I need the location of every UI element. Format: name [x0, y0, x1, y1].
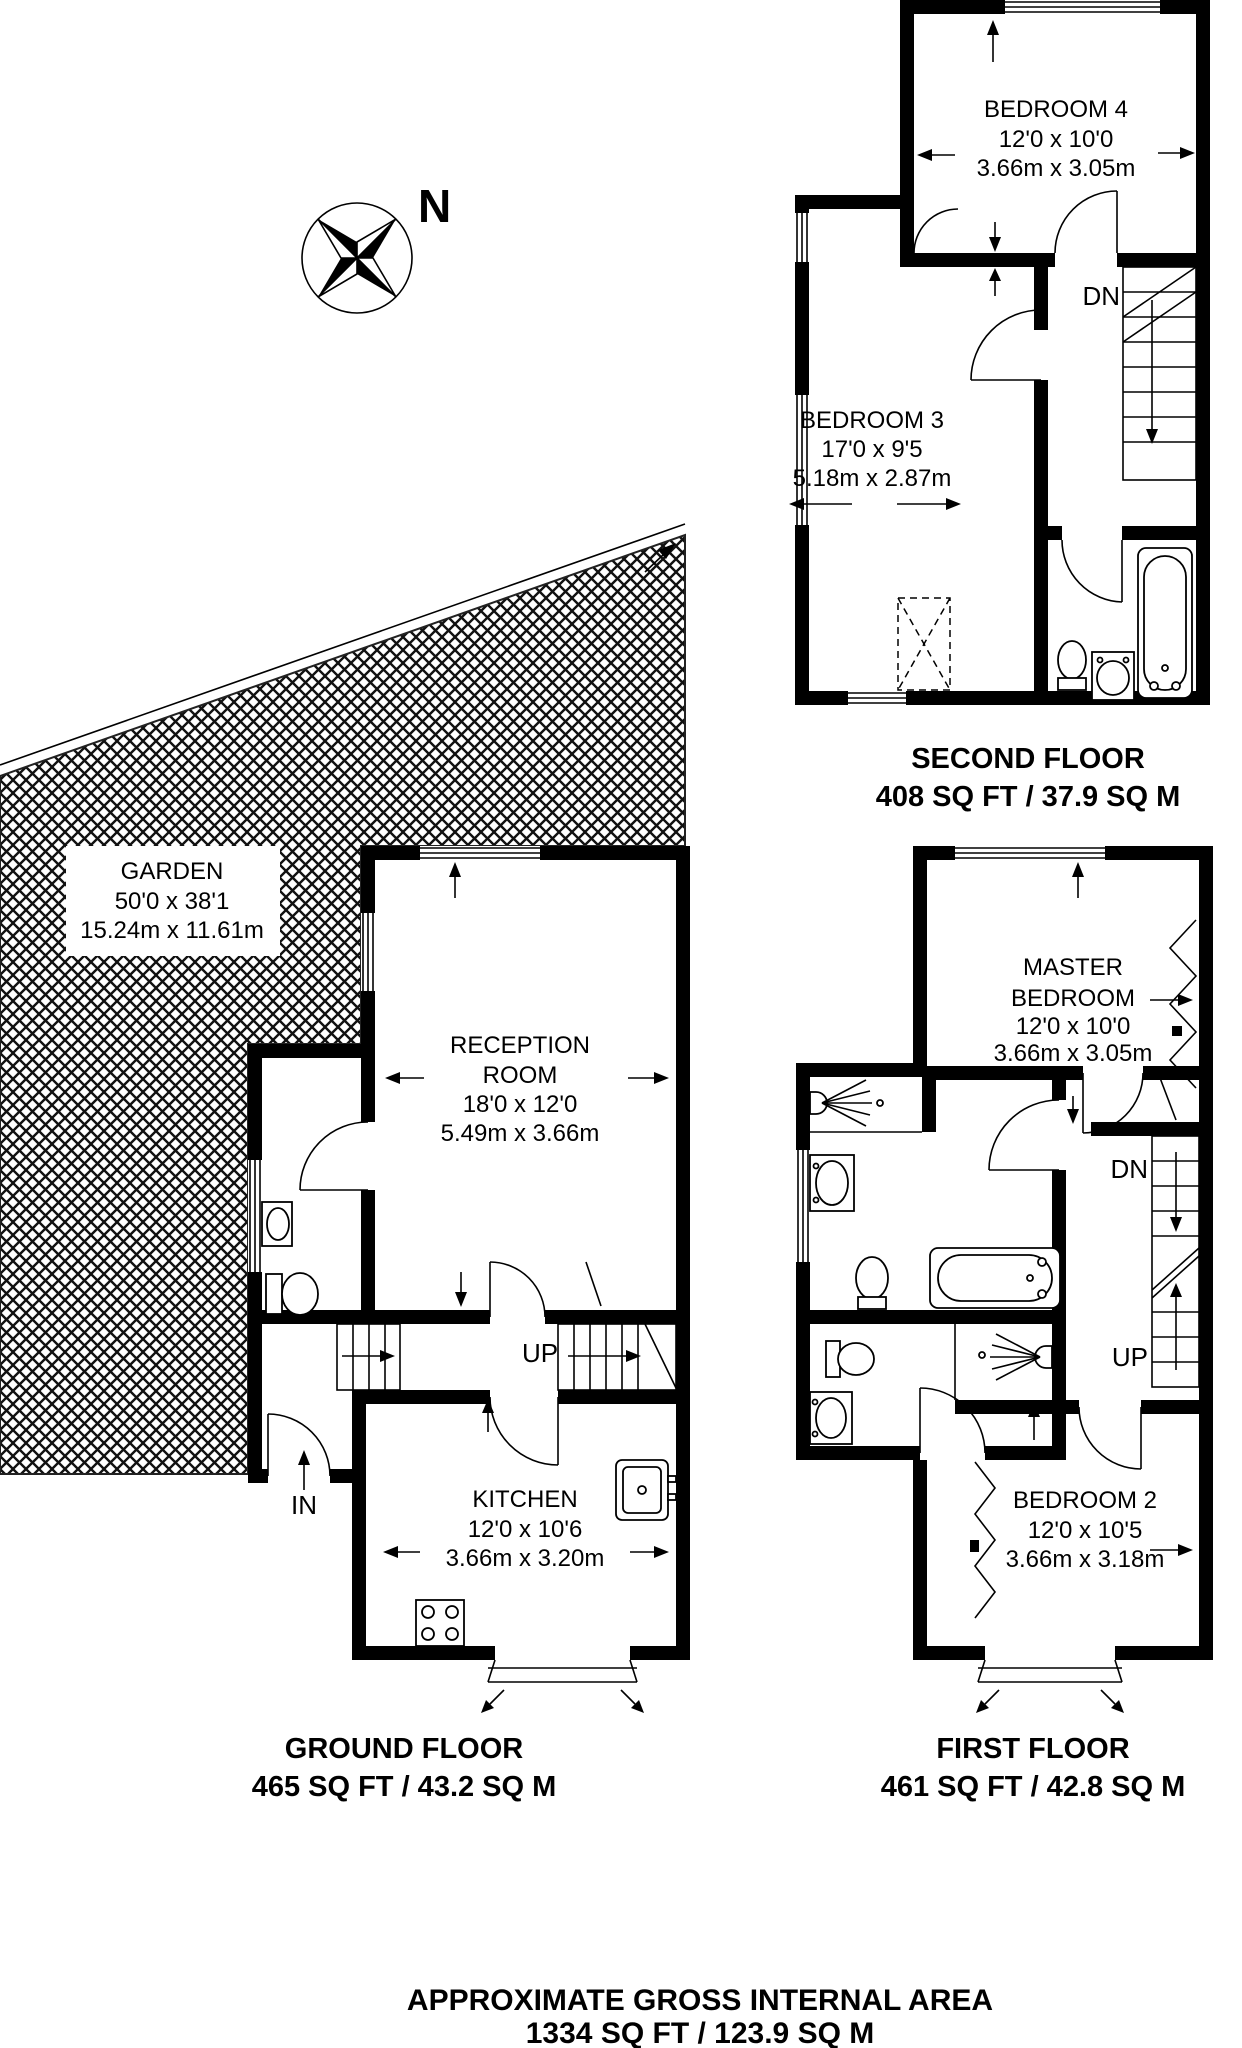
master-size-imperial: 12'0 x 10'0	[1016, 1013, 1131, 1040]
footer-total-area: 1334 SQ FT / 123.9 SQ M	[526, 2017, 875, 2048]
first-floor-dn-label: DN	[1110, 1154, 1148, 1184]
toilet-icon	[1058, 641, 1086, 690]
bedroom3-size-imperial: 17'0 x 9'5	[821, 436, 922, 463]
bathroom-side-window	[796, 1150, 810, 1262]
bathtub-icon	[930, 1248, 1060, 1308]
master-bedroom-label: MASTER BEDROOM 12'0 x 10'0 3.66m x 3.05m	[994, 954, 1153, 1067]
second-floor-plan: DN BEDROOM 4 12'0 x 10'0 3.66m x 3.05m B…	[789, 0, 1210, 813]
sink-icon	[1092, 652, 1134, 700]
first-floor-title: FIRST FLOOR	[936, 1733, 1129, 1765]
ground-floor-up-label: UP	[522, 1338, 558, 1368]
reception-top-window	[420, 846, 540, 860]
wardrobe-dashed-box	[898, 598, 950, 690]
first-floor-plan: DN UP MASTER BEDROOM 12'0 x 10'0 3.66m x…	[796, 846, 1213, 1803]
shower-room-fixtures	[810, 1324, 1052, 1444]
second-bathroom-fixtures	[1058, 548, 1192, 700]
bedroom4-label: BEDROOM 4 12'0 x 10'0 3.66m x 3.05m	[977, 96, 1136, 182]
sink-icon	[262, 1202, 292, 1246]
landing-window	[795, 213, 809, 262]
shower-icon	[979, 1334, 1052, 1380]
bedroom4-window	[1005, 0, 1160, 14]
bedroom2-door	[1079, 1407, 1141, 1469]
toilet-icon	[266, 1273, 318, 1315]
second-floor-area: 408 SQ FT / 37.9 SQ M	[876, 781, 1181, 813]
garden-name: GARDEN	[121, 858, 224, 885]
bedroom4-name: BEDROOM 4	[984, 96, 1128, 123]
second-floor-title: SECOND FLOOR	[911, 743, 1145, 775]
bedroom3-size-metric: 5.18m x 2.87m	[793, 465, 952, 492]
reception-name-line1: RECEPTION	[450, 1032, 590, 1059]
sink-icon	[810, 1155, 854, 1211]
kitchen-size-metric: 3.66m x 3.20m	[446, 1545, 605, 1572]
bedroom2-size-metric: 3.66m x 3.18m	[1006, 1546, 1165, 1573]
kitchen-sink-icon	[616, 1460, 676, 1520]
reception-hall-door	[490, 1262, 545, 1317]
floorplan-drawing: GARDEN 50'0 x 38'1 15.24m x 11.61m N	[0, 0, 1242, 2048]
bedroom4-door	[1055, 191, 1117, 253]
entrance-in-arrow	[298, 1450, 310, 1490]
compass-rose: N	[302, 180, 451, 313]
master-name-line2: BEDROOM	[1011, 985, 1135, 1012]
bedroom3-label: BEDROOM 3 17'0 x 9'5 5.18m x 2.87m	[793, 407, 952, 492]
garden-area: GARDEN 50'0 x 38'1 15.24m x 11.61m	[0, 524, 685, 1474]
toilet-icon	[826, 1341, 874, 1377]
reception-side-window	[361, 913, 375, 991]
bedroom4-size-imperial: 12'0 x 10'0	[999, 126, 1114, 153]
second-floor-doors	[914, 191, 1122, 602]
second-floor-stairs	[1123, 267, 1196, 480]
wc-fixtures	[262, 1202, 318, 1315]
second-bathroom-door	[1062, 540, 1122, 602]
master-name-line1: MASTER	[1023, 954, 1123, 981]
bathtub-icon	[1138, 548, 1192, 698]
wc-door	[300, 1122, 368, 1190]
kitchen-label: KITCHEN 12'0 x 10'6 3.66m x 3.20m	[446, 1486, 605, 1572]
kitchen-bay-window	[488, 1646, 637, 1682]
master-bedroom-window	[955, 846, 1105, 860]
entrance-in-label: IN	[291, 1490, 317, 1520]
sink-icon	[810, 1392, 852, 1444]
first-floor-up-label: UP	[1112, 1342, 1148, 1372]
kitchen-name: KITCHEN	[472, 1486, 577, 1513]
garden-size-metric: 15.24m x 11.61m	[80, 917, 264, 944]
hob-icon	[416, 1600, 464, 1646]
kitchen-door	[490, 1397, 558, 1465]
reception-cupboard-door	[586, 1262, 601, 1306]
first-floor-area: 461 SQ FT / 42.8 SQ M	[881, 1771, 1186, 1803]
master-size-metric: 3.66m x 3.05m	[994, 1040, 1153, 1067]
bedroom3-door	[971, 310, 1041, 380]
shower-icon	[810, 1080, 883, 1126]
ground-floor-area: 465 SQ FT / 43.2 SQ M	[252, 1771, 557, 1803]
floorplan-page: GARDEN 50'0 x 38'1 15.24m x 11.61m N	[0, 0, 1242, 2048]
garden-size-imperial: 50'0 x 38'1	[115, 888, 230, 915]
compass-north-label: N	[418, 180, 451, 232]
footer: APPROXIMATE GROSS INTERNAL AREA 1334 SQ …	[407, 1984, 993, 2048]
kitchen-size-imperial: 12'0 x 10'6	[468, 1516, 583, 1543]
shower-room-door	[920, 1388, 985, 1453]
reception-size-metric: 5.49m x 3.66m	[441, 1120, 600, 1147]
ground-floor-title: GROUND FLOOR	[285, 1733, 523, 1765]
second-floor-bottom-window	[848, 691, 906, 705]
closet-door-arc	[914, 209, 958, 253]
footer-title: APPROXIMATE GROSS INTERNAL AREA	[407, 1984, 993, 2017]
reception-label: RECEPTION ROOM 18'0 x 12'0 5.49m x 3.66m	[441, 1032, 600, 1147]
bedroom3-name: BEDROOM 3	[800, 407, 944, 434]
entrance-door	[268, 1414, 330, 1476]
bedroom2-name: BEDROOM 2	[1013, 1487, 1157, 1514]
reception-size-imperial: 18'0 x 12'0	[463, 1091, 578, 1118]
toilet-icon	[856, 1257, 888, 1309]
bedroom2-label: BEDROOM 2 12'0 x 10'5 3.66m x 3.18m	[1006, 1487, 1165, 1573]
wc-side-window	[248, 1160, 262, 1272]
bedroom2-bay-window	[978, 1646, 1122, 1682]
bedroom4-size-metric: 3.66m x 3.05m	[977, 155, 1136, 182]
bathroom-door	[989, 1100, 1059, 1170]
bedroom2-size-imperial: 12'0 x 10'5	[1028, 1517, 1143, 1544]
reception-name-line2: ROOM	[483, 1062, 558, 1089]
second-floor-dn-label: DN	[1082, 281, 1120, 311]
